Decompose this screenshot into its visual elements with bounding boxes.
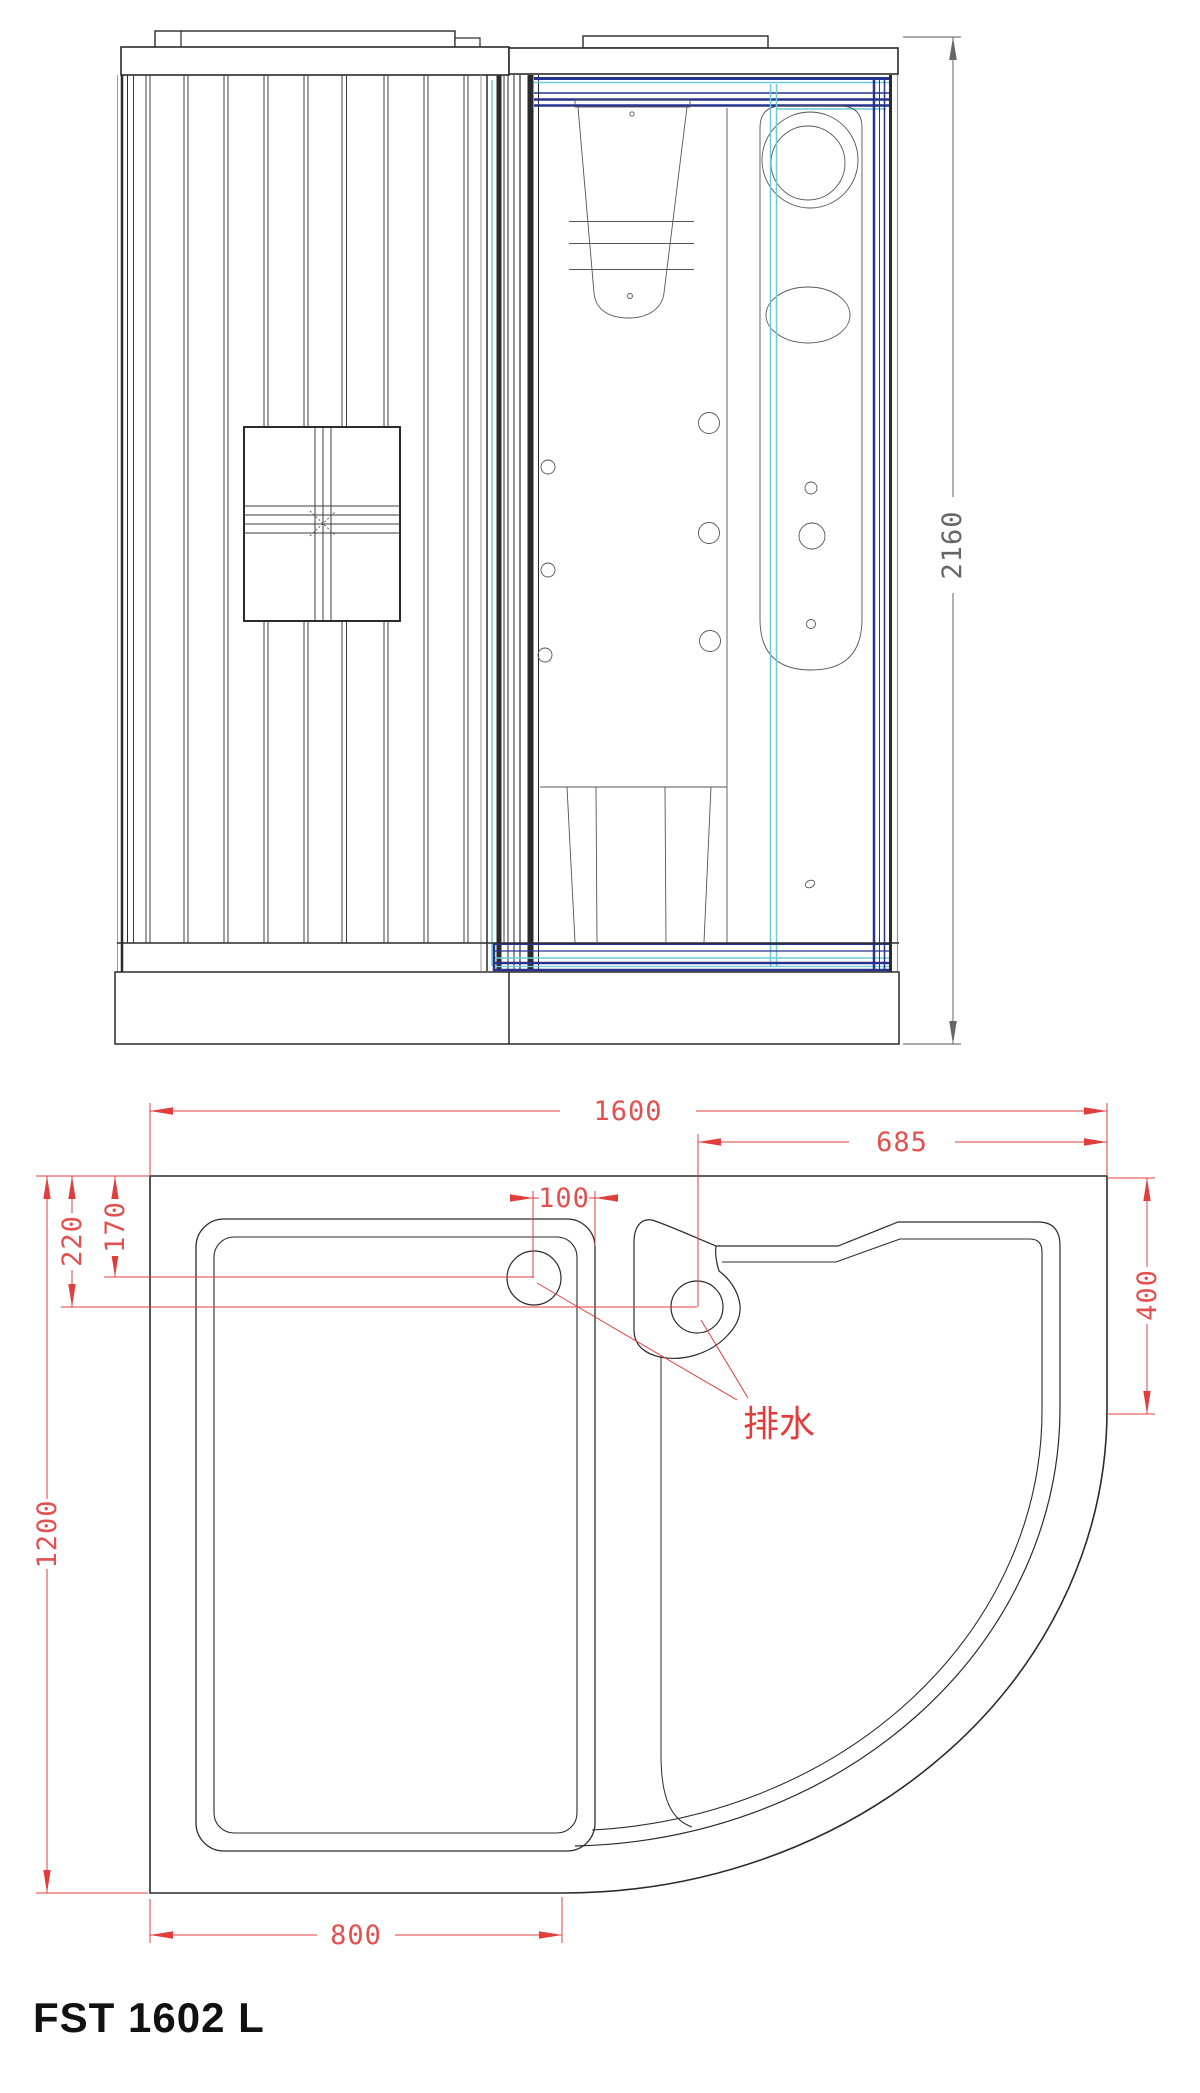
- control-panel: [760, 106, 862, 889]
- spout-mark: [804, 879, 816, 890]
- door-knob: [699, 413, 720, 434]
- shower-cabin-technical-drawing: 2160: [0, 0, 1200, 2093]
- dim-220-value: 220: [57, 1215, 88, 1267]
- door-track-top: [534, 79, 889, 110]
- wall-jets: [538, 460, 555, 662]
- dim-right-section: 685: [698, 1127, 1107, 1158]
- dim-right-edge-depth: 400: [1129, 1178, 1163, 1414]
- sliding-door: [699, 108, 728, 943]
- door-section: [493, 75, 898, 972]
- door-track-bottom: [493, 943, 889, 971]
- seat-pedestal: [540, 787, 727, 942]
- mirror-column: [569, 100, 694, 318]
- dim-drain-offset: 100: [510, 1183, 618, 1214]
- plan-view: 1600 685 100 170: [29, 1096, 1163, 1951]
- dim-685-value: 685: [876, 1127, 928, 1158]
- drawing-sheet: 2160: [0, 0, 1200, 2093]
- dim-drain-left-depth: 170: [97, 1176, 131, 1277]
- drain-left: [507, 1251, 561, 1305]
- panel-display: [766, 287, 850, 343]
- dim-100-value: 100: [538, 1183, 590, 1214]
- mount-dot-bottom: [628, 294, 633, 299]
- dim-170-value: 170: [100, 1201, 131, 1253]
- dim-total-width: 1600: [150, 1096, 1107, 1127]
- shower-head-inner: [771, 126, 845, 200]
- dim-800-value: 800: [330, 1920, 382, 1951]
- model-title: FST 1602 L: [33, 1994, 265, 2041]
- left-basin: [196, 1219, 595, 1851]
- glass-reflection-lines: [771, 84, 777, 966]
- right-corner-post: [874, 75, 898, 972]
- divider-frame: [481, 75, 539, 971]
- elevation-view: 2160: [115, 31, 968, 1044]
- panel-knob: [799, 523, 825, 549]
- panel-jet: [805, 482, 817, 494]
- dim-400-value: 400: [1132, 1269, 1163, 1321]
- dim-total-depth: 1200: [29, 1176, 63, 1893]
- panel-jet: [807, 620, 816, 629]
- door-knob: [699, 523, 720, 544]
- drain-label: 排水: [743, 1404, 815, 1445]
- dim-height-value: 2160: [937, 510, 968, 579]
- dim-drain-right-depth: 220: [54, 1176, 88, 1307]
- dim-overall-height: 2160: [903, 37, 968, 1044]
- dim-left-section: 800: [150, 1920, 562, 1951]
- right-basin: [575, 1220, 1060, 1846]
- cross-panel: [244, 427, 400, 621]
- tray-outline: [150, 1176, 1107, 1893]
- dim-1600-value: 1600: [593, 1096, 662, 1127]
- dim-1200-value: 1200: [32, 1499, 63, 1568]
- left-corner-post: [118, 75, 128, 972]
- mount-dot-top: [630, 112, 634, 116]
- door-knob: [700, 631, 721, 652]
- roof: [121, 31, 898, 75]
